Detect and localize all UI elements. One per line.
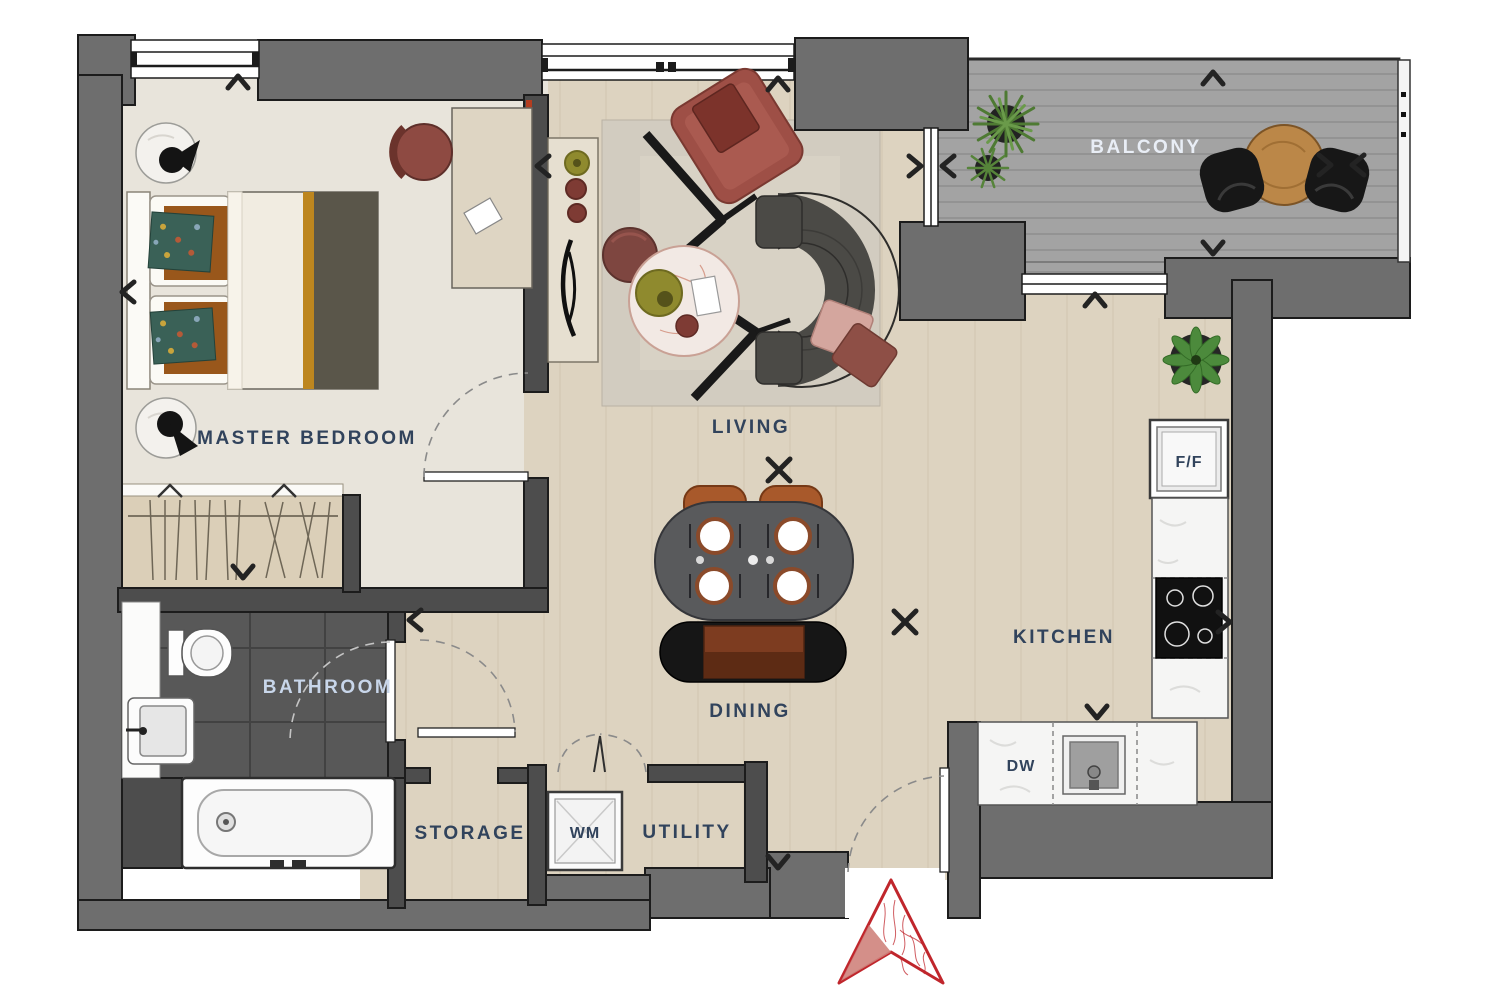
fridge-freezer: F/F (1150, 420, 1228, 498)
fridge-freezer-label: F/F (1176, 454, 1203, 471)
floor-plan-page: F/F DW (0, 0, 1500, 1000)
master-bedroom-label: MASTER BEDROOM (197, 428, 417, 449)
washing-machine-label: WM (570, 825, 600, 842)
bed-mustard-stripe (303, 192, 314, 389)
toilet (168, 629, 232, 677)
bed-foot-runner (314, 192, 378, 389)
media-console (548, 138, 598, 362)
bathroom-sink (126, 698, 194, 764)
bedroom-doorway-floor (524, 392, 550, 478)
tap-icon (139, 727, 147, 735)
balcony-sliding-door (924, 128, 938, 226)
table-bowl (636, 270, 682, 316)
wardrobe (122, 484, 343, 588)
kitchen-plant (1163, 327, 1229, 393)
dining-label: DINING (709, 701, 791, 722)
bathroom-label: BATHROOM (263, 677, 393, 698)
floor-plan: F/F DW (0, 0, 1500, 1000)
coffee-table (629, 246, 739, 356)
kitchen-sink (1063, 736, 1125, 794)
hob (1156, 578, 1222, 658)
kitchen-counter-bottom: DW (978, 722, 1197, 805)
bed-headboard (127, 192, 150, 389)
living-label: LIVING (712, 417, 790, 438)
kitchen-counter-right (1152, 498, 1228, 718)
balcony-rail (1398, 60, 1410, 262)
storage-label: STORAGE (414, 823, 525, 844)
bathtub (182, 778, 395, 869)
bedroom-window (131, 40, 259, 78)
tap-icon (1088, 766, 1100, 778)
desk-chair (393, 124, 452, 180)
patterned-cushion (150, 308, 215, 364)
dining-furniture (655, 486, 853, 682)
desk (452, 108, 532, 288)
washing-machine: WM (548, 792, 622, 870)
patterned-cushion (148, 212, 214, 272)
utility-label: UTILITY (642, 822, 731, 843)
balcony-label: BALCONY (1090, 137, 1201, 158)
dining-bench (660, 622, 846, 682)
kitchen-balcony-window (1022, 274, 1167, 294)
dishwasher-label: DW (1007, 758, 1036, 775)
kitchen-label: KITCHEN (1013, 627, 1115, 648)
